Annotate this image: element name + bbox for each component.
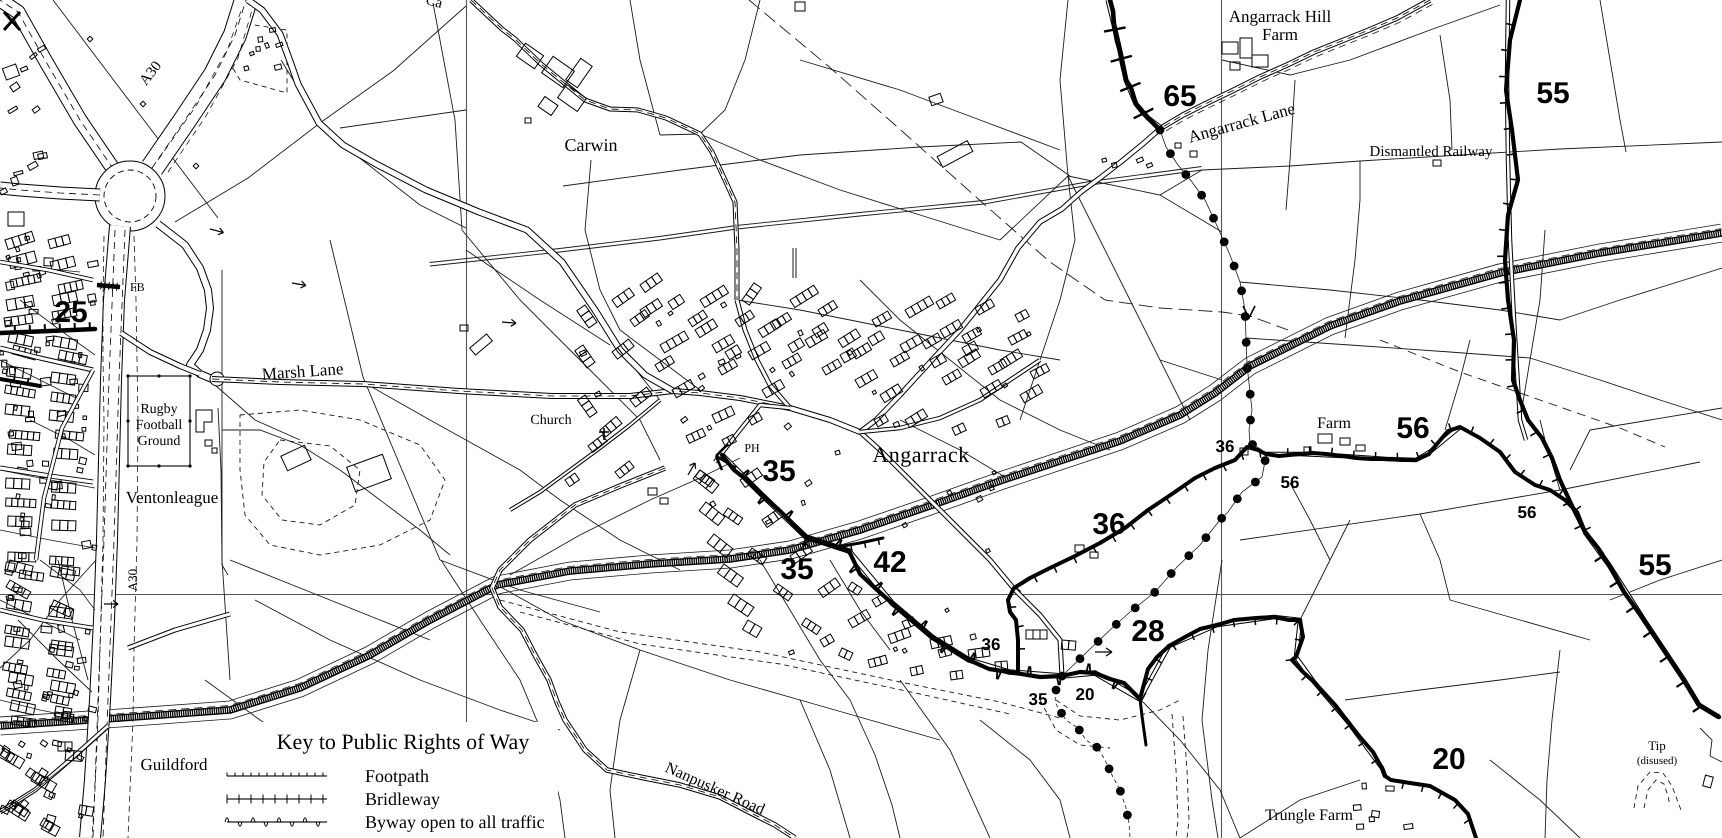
svg-text:56: 56	[1396, 412, 1429, 445]
svg-text:35: 35	[1029, 690, 1048, 709]
svg-text:Ground: Ground	[138, 434, 181, 449]
svg-text:36: 36	[982, 635, 1001, 654]
svg-text:36: 36	[1216, 437, 1235, 456]
svg-text:Rugby: Rugby	[140, 402, 177, 417]
svg-text:Farm: Farm	[1317, 415, 1351, 432]
svg-text:Bridleway: Bridleway	[365, 789, 440, 809]
svg-text:Carwin: Carwin	[565, 135, 618, 155]
svg-text:Ventonleague: Ventonleague	[126, 488, 219, 507]
svg-text:Byway open to all traffic: Byway open to all traffic	[365, 812, 545, 832]
svg-text:28: 28	[1131, 615, 1164, 648]
svg-text:55: 55	[1536, 77, 1569, 110]
svg-text:Key to Public Rights of Way: Key to Public Rights of Way	[277, 729, 530, 754]
svg-text:A30: A30	[125, 569, 140, 591]
svg-text:42: 42	[873, 546, 906, 579]
svg-text:65: 65	[1163, 80, 1196, 113]
svg-text:35: 35	[762, 455, 795, 488]
svg-text:Guildford: Guildford	[140, 755, 208, 774]
svg-text:Tip: Tip	[1648, 738, 1666, 753]
svg-text:FB: FB	[130, 280, 145, 294]
svg-text:56: 56	[1518, 503, 1537, 522]
svg-text:55: 55	[1638, 549, 1671, 582]
svg-text:Angarrack Hill: Angarrack Hill	[1229, 7, 1332, 26]
svg-text:Football: Football	[136, 418, 183, 433]
svg-text:Trungle Farm: Trungle Farm	[1265, 807, 1353, 824]
svg-text:36: 36	[1092, 508, 1125, 541]
svg-text:PH: PH	[744, 441, 760, 455]
svg-text:Dismantled Railway: Dismantled Railway	[1370, 144, 1493, 160]
svg-text:20: 20	[1076, 685, 1095, 704]
svg-text:Footpath: Footpath	[365, 766, 429, 786]
svg-text:20: 20	[1432, 743, 1465, 776]
svg-text:25: 25	[54, 296, 87, 329]
svg-text:(disused): (disused)	[1637, 755, 1678, 767]
svg-text:35: 35	[780, 553, 813, 586]
svg-text:56: 56	[1281, 473, 1300, 492]
svg-text:Church: Church	[530, 413, 571, 428]
svg-text:Angarrack: Angarrack	[872, 442, 969, 467]
svg-text:Farm: Farm	[1262, 25, 1298, 44]
